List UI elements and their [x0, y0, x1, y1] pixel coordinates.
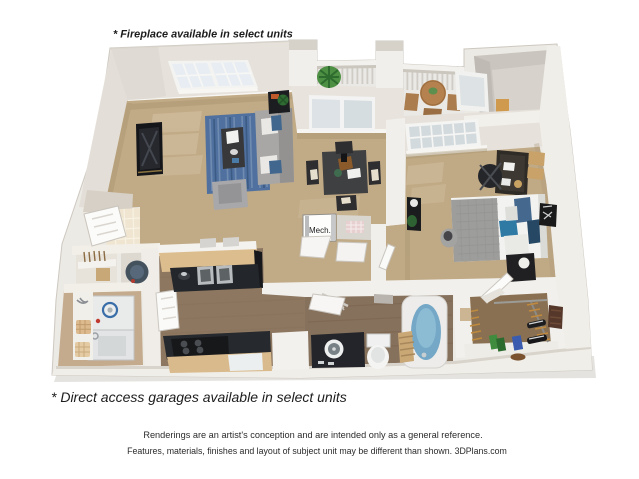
svg-text:Mech.: Mech. — [309, 226, 331, 235]
svg-text:* Fireplace available in selec: * Fireplace available in select units — [113, 29, 293, 41]
svg-text:Features, materials, finishes: Features, materials, finishes and layout… — [127, 446, 507, 456]
svg-text:Renderings are an artist's con: Renderings are an artist's conception an… — [143, 430, 482, 440]
svg-text:* Direct access garages availa: * Direct access garages available in sel… — [51, 389, 347, 405]
